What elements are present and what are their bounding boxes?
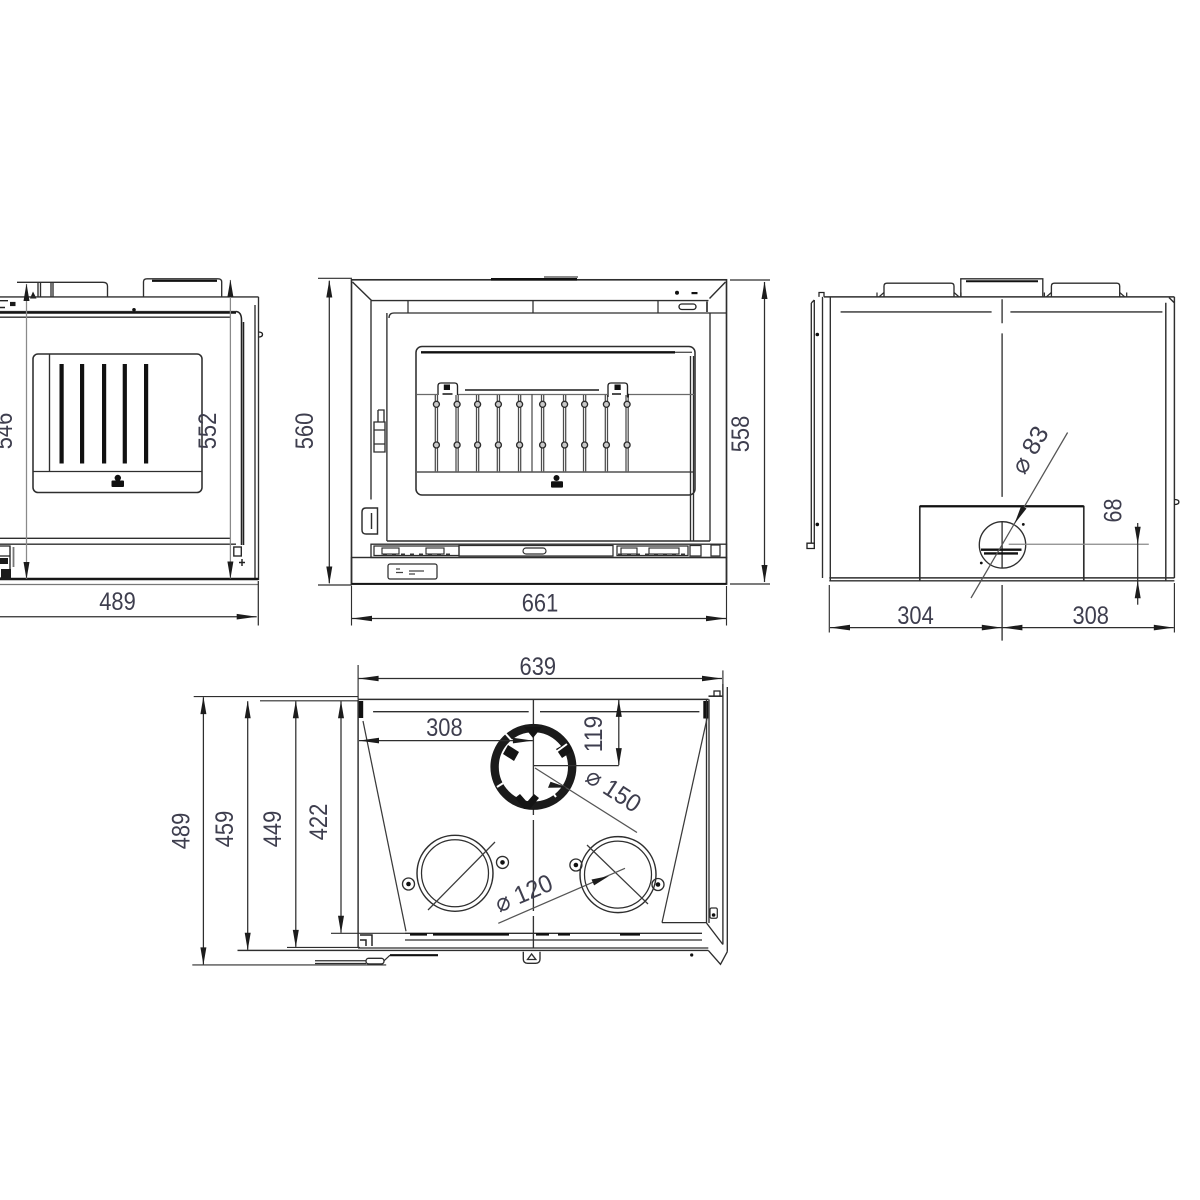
svg-text:119: 119: [580, 716, 608, 753]
svg-text:449: 449: [259, 811, 287, 848]
svg-text:639: 639: [520, 653, 557, 681]
svg-text:560: 560: [291, 413, 319, 450]
svg-text:⌀ 150: ⌀ 150: [581, 762, 647, 818]
svg-text:308: 308: [426, 714, 463, 742]
svg-text:552: 552: [194, 413, 222, 450]
svg-text:304: 304: [897, 602, 934, 630]
svg-text:661: 661: [522, 590, 559, 618]
svg-text:546: 546: [0, 413, 18, 450]
svg-text:⌀ 120: ⌀ 120: [491, 869, 557, 918]
svg-text:558: 558: [727, 416, 755, 453]
svg-text:489: 489: [167, 813, 195, 850]
svg-text:⌀ 83: ⌀ 83: [1005, 421, 1054, 478]
svg-text:422: 422: [305, 804, 333, 841]
svg-text:489: 489: [99, 588, 136, 616]
svg-text:459: 459: [211, 811, 239, 848]
svg-text:308: 308: [1072, 602, 1109, 630]
svg-text:68: 68: [1100, 499, 1128, 523]
